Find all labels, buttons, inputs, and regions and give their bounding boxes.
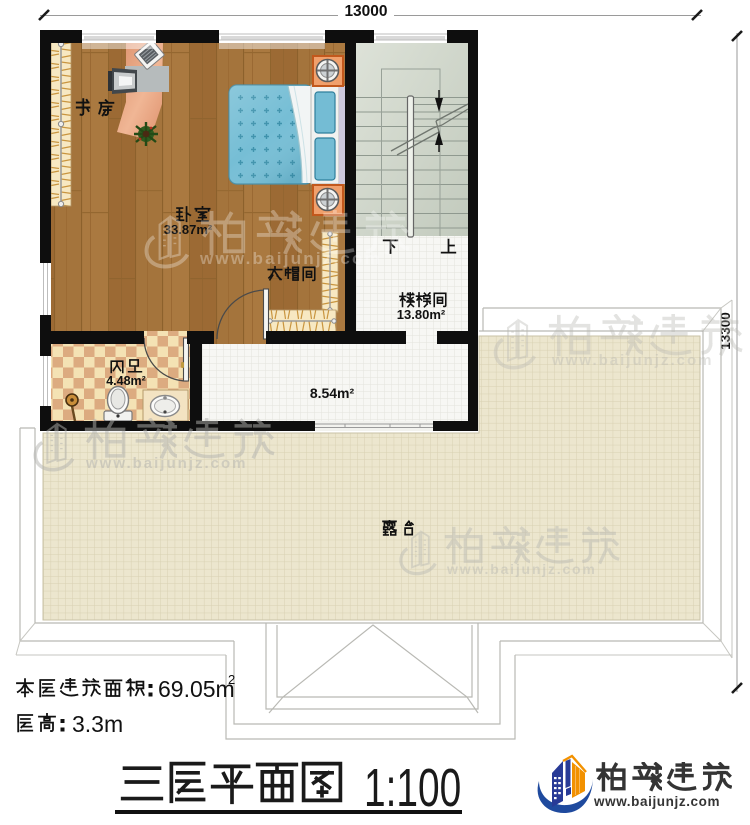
svg-text:www.baijunjz.com: www.baijunjz.com bbox=[199, 249, 382, 268]
svg-text:2: 2 bbox=[228, 672, 235, 687]
svg-text:13.80m²: 13.80m² bbox=[397, 307, 446, 322]
svg-text:69.05m: 69.05m bbox=[158, 676, 235, 702]
svg-text:www.baijunjz.com: www.baijunjz.com bbox=[85, 455, 247, 472]
svg-text:www.baijunjz.com: www.baijunjz.com bbox=[446, 561, 597, 577]
svg-text:8.54m²: 8.54m² bbox=[310, 385, 355, 401]
svg-text:13000: 13000 bbox=[344, 3, 387, 20]
svg-text:1:100: 1:100 bbox=[364, 757, 461, 818]
svg-text:3.3m: 3.3m bbox=[72, 711, 123, 737]
svg-text:www.baijunjz.com: www.baijunjz.com bbox=[551, 352, 713, 369]
svg-text:www.baijunjz.com: www.baijunjz.com bbox=[593, 794, 720, 809]
svg-text:4.48m²: 4.48m² bbox=[106, 374, 146, 388]
